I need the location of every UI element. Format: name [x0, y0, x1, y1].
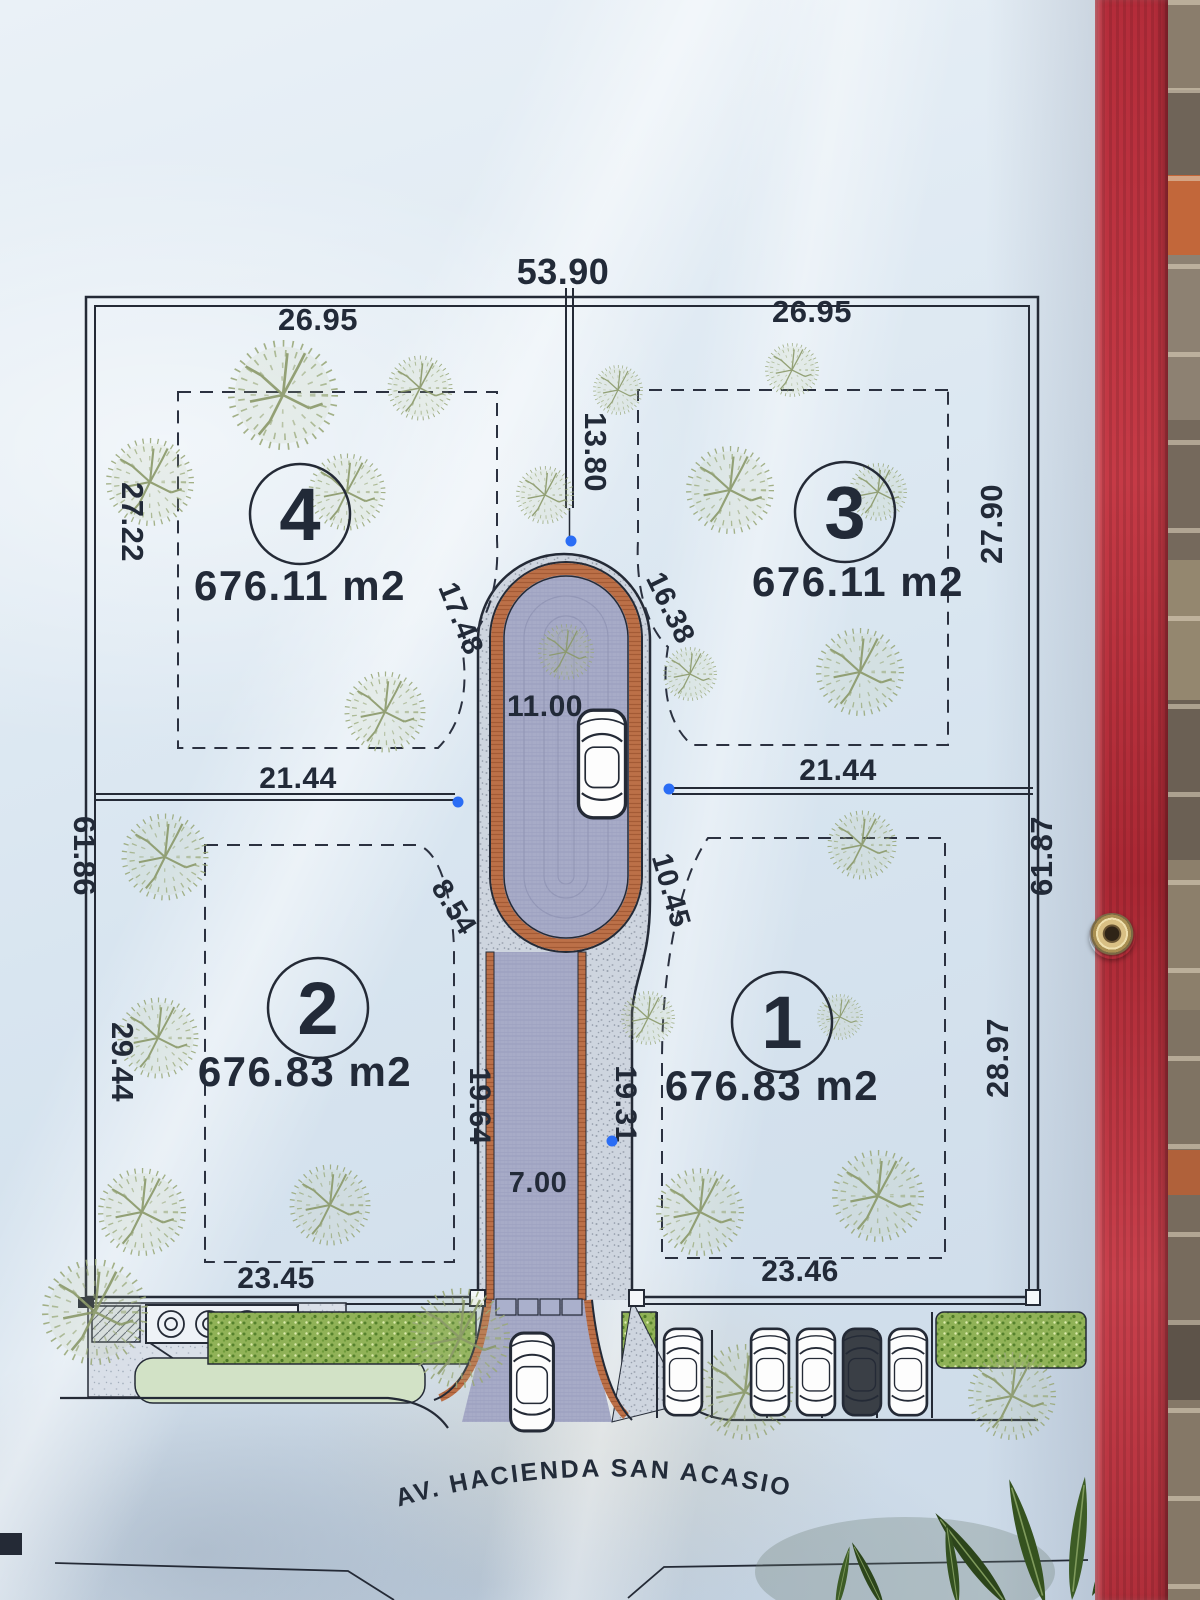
tree-icon [347, 674, 423, 750]
dim-mid-left: 21.44 [259, 762, 337, 795]
dim-drive-right: 19.31 [609, 1065, 642, 1143]
car-icon [578, 710, 625, 818]
dim-mid-right: 21.44 [799, 754, 877, 787]
street-name-text: AV. HACIENDA SAN ACASIO [392, 1454, 794, 1512]
tree-icon [665, 649, 716, 700]
lot2-number: 2 [297, 967, 338, 1050]
dim-divider: 13.80 [578, 412, 613, 492]
tree-icon [818, 995, 861, 1038]
dim-drive-left: 19.64 [463, 1067, 496, 1145]
dim-top-right: 26.95 [772, 294, 852, 329]
tree-icon [292, 1167, 368, 1243]
lot1-area: 676.83 m2 [665, 1062, 879, 1109]
car-icon [511, 1333, 554, 1431]
dim-top-total: 53.90 [517, 251, 610, 292]
car-icon [751, 1329, 789, 1415]
tree-icon [767, 345, 818, 396]
car-icon [664, 1329, 702, 1415]
property-line-right [672, 788, 1033, 794]
dim-top-left: 26.95 [278, 302, 358, 337]
dim-bottom-left: 23.45 [237, 1262, 315, 1295]
tree-icon [819, 631, 902, 714]
lot4-area: 676.11 m2 [194, 562, 406, 609]
tree-icon [389, 357, 450, 418]
dim-side-right-total: 61.87 [1024, 816, 1059, 896]
tree-icon [689, 449, 772, 532]
tree-icon [231, 343, 334, 446]
street-name: AV. HACIENDA SAN ACASIO [392, 1454, 794, 1512]
car-icon-dark [843, 1329, 881, 1415]
dim-side-upper-right: 27.90 [974, 484, 1009, 564]
tree-icon [835, 1153, 921, 1239]
tree-icon [830, 813, 895, 878]
lot3-area: 676.11 m2 [752, 558, 964, 605]
leaf-icon [1065, 1476, 1093, 1600]
dim-bottom-right: 23.46 [761, 1255, 839, 1288]
foreground-plant [755, 1476, 1147, 1600]
car-icon [889, 1329, 927, 1415]
tree-icon [518, 468, 573, 523]
dim-drive-width: 7.00 [509, 1167, 567, 1199]
dim-side-left-total: 61.86 [67, 816, 102, 896]
dim-curve-left: 8.54 [425, 874, 483, 941]
tree-icon [124, 816, 206, 898]
lot3-number: 3 [824, 471, 865, 554]
car-icon [797, 1329, 835, 1415]
site-plan-drawing: 4 676.11 m2 3 676.11 m2 2 676.83 m2 1 67… [0, 0, 1200, 1600]
tree-icon [311, 456, 383, 528]
lot1-number: 1 [761, 981, 802, 1064]
tree-icon [659, 1171, 742, 1254]
tree-icon [595, 367, 642, 414]
lot2-area: 676.83 m2 [198, 1048, 412, 1095]
dim-side-lower-left: 29.44 [105, 1022, 140, 1102]
grommet-eyelet [1089, 913, 1135, 959]
banner-corner-mark [0, 1533, 22, 1555]
driveway-pavers [494, 952, 578, 1300]
dim-cul-width: 11.00 [507, 690, 583, 723]
dim-side-lower-right: 28.97 [980, 1018, 1015, 1098]
tree-icon [101, 1171, 184, 1254]
dim-side-upper-left: 27.22 [115, 482, 150, 562]
dim-curve-right: 10.45 [645, 850, 696, 931]
banner-red-edge [1095, 0, 1168, 1600]
banner-photo: 4 676.11 m2 3 676.11 m2 2 676.83 m2 1 67… [0, 0, 1200, 1600]
lot4-number: 4 [279, 473, 320, 556]
